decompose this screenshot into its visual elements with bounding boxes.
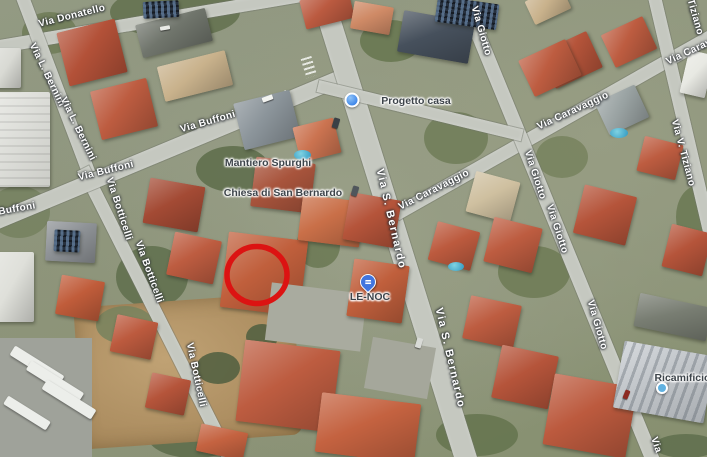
- building-roof: [465, 171, 520, 223]
- building-roof: [462, 295, 522, 349]
- building-roof: [0, 252, 34, 322]
- poi-label-mantiero-spurghi[interactable]: Mantiero Spurghi: [225, 157, 311, 169]
- building-roof: [573, 184, 637, 246]
- swimming-pool: [610, 128, 628, 138]
- crosswalk: [301, 56, 317, 78]
- solar-panel-array: [143, 0, 180, 19]
- building-roof: [142, 177, 205, 232]
- poi-label-le-noc[interactable]: LE-NOC: [350, 291, 390, 303]
- building-roof: [350, 1, 394, 36]
- road-label-via-giotto: Via Giotto: [585, 299, 610, 351]
- building-roof: [601, 16, 658, 68]
- poi-label-ricamificio[interactable]: Ricamificio G: [654, 372, 707, 384]
- car: [332, 117, 341, 128]
- building-roof: [524, 0, 571, 25]
- building-roof: [491, 345, 559, 410]
- industrial-building: [0, 92, 50, 187]
- building-roof: [0, 48, 21, 88]
- pin-glyph: [365, 280, 371, 285]
- building-roof: [661, 224, 707, 277]
- vegetation: [536, 136, 588, 178]
- road-label-tiziano: Tiziano: [685, 0, 706, 36]
- solar-panel-array: [53, 229, 80, 252]
- building-roof: [633, 293, 707, 342]
- poi-label-chiesa-di-san-bernardo[interactable]: Chiesa di San Bernardo: [224, 187, 342, 199]
- building-roof: [55, 274, 105, 321]
- building-roof: [90, 78, 158, 141]
- blue-dot-icon[interactable]: [345, 93, 360, 108]
- building-roof: [157, 50, 234, 102]
- map-canvas[interactable]: Via Donatello Via L. Bernini Via L. Bern…: [0, 0, 707, 457]
- building-roof: [315, 392, 422, 457]
- road-label-via-caravaggio: Via Caravaggio: [397, 167, 471, 212]
- parking-courtyard: [364, 337, 436, 399]
- swimming-pool: [448, 262, 464, 271]
- poi-label-progetto-casa[interactable]: Progetto casa: [381, 95, 450, 107]
